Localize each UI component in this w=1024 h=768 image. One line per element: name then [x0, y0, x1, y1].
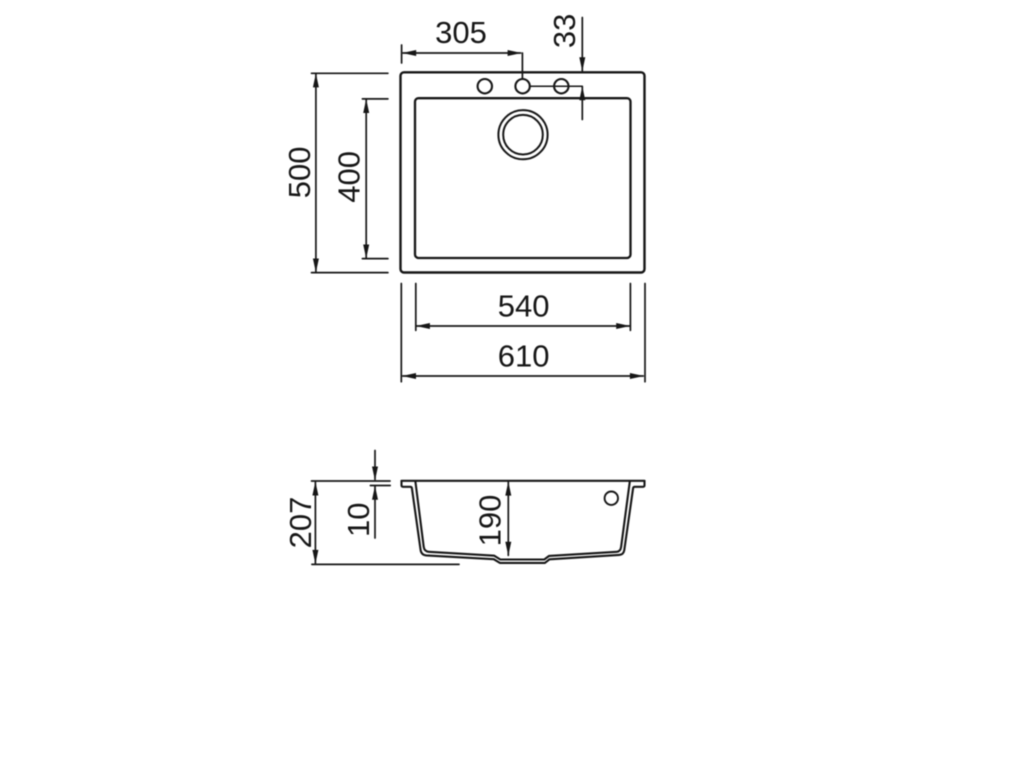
svg-text:540: 540	[498, 289, 550, 324]
svg-text:207: 207	[283, 497, 318, 549]
svg-text:400: 400	[331, 151, 366, 203]
svg-text:10: 10	[341, 503, 376, 537]
svg-text:500: 500	[282, 147, 317, 199]
svg-text:190: 190	[472, 495, 507, 547]
svg-text:610: 610	[498, 339, 550, 374]
svg-text:305: 305	[435, 15, 487, 50]
svg-text:33: 33	[547, 14, 582, 48]
